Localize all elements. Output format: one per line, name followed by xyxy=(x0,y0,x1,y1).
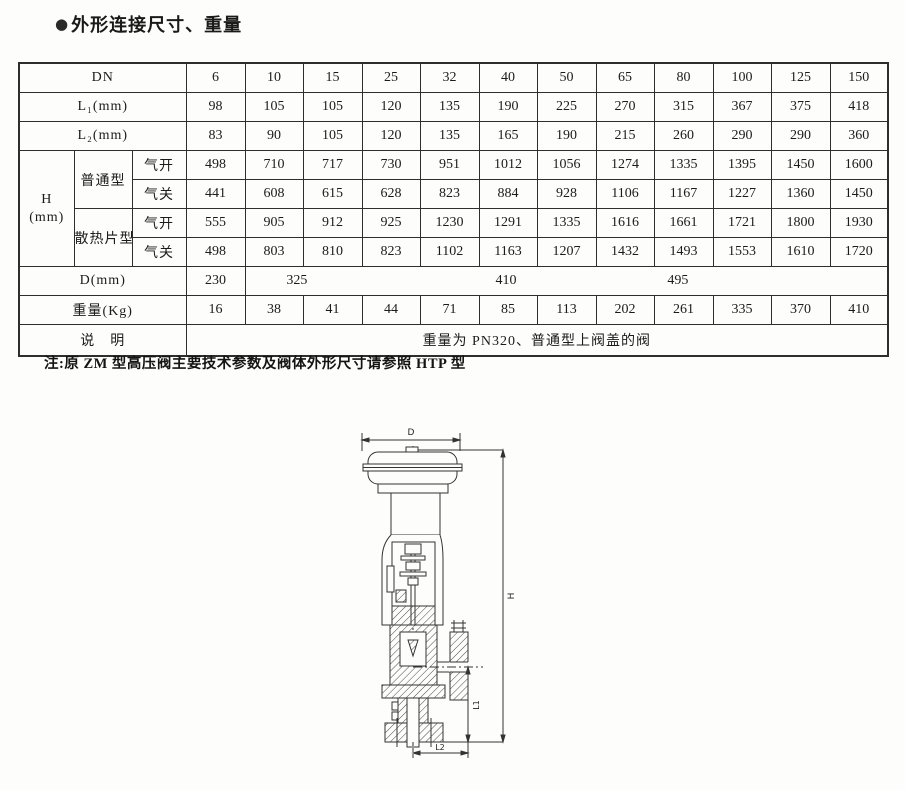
table-cell: 1102 xyxy=(420,238,479,267)
dim-label-h: H xyxy=(507,593,517,600)
table-cell: 215 xyxy=(596,122,654,151)
table-cell: 823 xyxy=(420,180,479,209)
table-cell: 50 xyxy=(537,63,596,93)
table-cell: 418 xyxy=(830,93,888,122)
table-cell: 135 xyxy=(420,93,479,122)
row-label-weight: 重量(Kg) xyxy=(19,296,186,325)
table-cell: 1610 xyxy=(771,238,830,267)
table-cell: 120 xyxy=(362,122,420,151)
group-label-finned: 散热片型 xyxy=(74,209,132,267)
table-row: H (mm) 普通型 气开 49871071773095110121056127… xyxy=(19,151,888,180)
table-cell: 1395 xyxy=(713,151,771,180)
valve-drawing: D H L1 L2 xyxy=(330,420,530,775)
table-cell: 315 xyxy=(654,93,713,122)
table-cell: 290 xyxy=(771,122,830,151)
table-cell: 202 xyxy=(596,296,654,325)
sub-label-air-open: 气开 xyxy=(132,209,186,238)
d-value: 325 xyxy=(286,273,307,289)
table-cell: 498 xyxy=(186,151,245,180)
table-cell: 367 xyxy=(713,93,771,122)
table-cell: 1056 xyxy=(537,151,596,180)
table-cell: 1720 xyxy=(830,238,888,267)
table-cell: 1012 xyxy=(479,151,537,180)
table-cell: 150 xyxy=(830,63,888,93)
table-cell: 1721 xyxy=(713,209,771,238)
dim-label-d: D xyxy=(408,428,415,438)
table-cell: 441 xyxy=(186,180,245,209)
table-cell: 1450 xyxy=(830,180,888,209)
table-cell: 83 xyxy=(186,122,245,151)
dim-label-l1: L1 xyxy=(472,700,481,710)
row-label-dn: DN xyxy=(19,63,186,93)
table-cell: 375 xyxy=(771,93,830,122)
table-cell: 41 xyxy=(303,296,362,325)
table-cell: 261 xyxy=(654,296,713,325)
table-cell: 230 xyxy=(186,267,245,296)
row-label-l2: L₂(mm) xyxy=(19,122,186,151)
document-page: ● 外形连接尺寸、重量 DN 6101525324050658010012515… xyxy=(0,0,905,790)
remark-value: 重量为 PN320、普通型上阀盖的阀 xyxy=(186,325,888,356)
table-cell: 615 xyxy=(303,180,362,209)
table-cell: 608 xyxy=(245,180,303,209)
table-cell: 925 xyxy=(362,209,420,238)
table-cell: 260 xyxy=(654,122,713,151)
table-cell: 810 xyxy=(303,238,362,267)
sub-label-air-close: 气关 xyxy=(132,180,186,209)
table-row: 气关 4416086156288238849281106116712271360… xyxy=(19,180,888,209)
table-cell: 25 xyxy=(362,63,420,93)
row-label-remark: 说 明 xyxy=(19,325,186,356)
table-cell: 823 xyxy=(362,238,420,267)
table-cell: 1616 xyxy=(596,209,654,238)
table-cell: 80 xyxy=(654,63,713,93)
bonnet-flange xyxy=(382,685,445,698)
table-cell: 730 xyxy=(362,151,420,180)
page-title: 外形连接尺寸、重量 xyxy=(71,11,242,37)
table-cell: 1553 xyxy=(713,238,771,267)
table-cell: 15 xyxy=(303,63,362,93)
table-cell: 1661 xyxy=(654,209,713,238)
table-cell: 113 xyxy=(537,296,596,325)
table-cell: 1106 xyxy=(596,180,654,209)
travel-scale xyxy=(387,566,394,592)
table-cell: 1227 xyxy=(713,180,771,209)
table-cell: 905 xyxy=(245,209,303,238)
dimensions-table: DN 61015253240506580100125150 L₁(mm) 981… xyxy=(18,62,889,357)
sub-label-air-close: 气关 xyxy=(132,238,186,267)
table-cell: 710 xyxy=(245,151,303,180)
table-cell: 555 xyxy=(186,209,245,238)
group-label-ordinary: 普通型 xyxy=(74,151,132,209)
table-cell: 951 xyxy=(420,151,479,180)
row-label-l1: L₁(mm) xyxy=(19,93,186,122)
h-label: H xyxy=(20,191,74,209)
table-cell: 1335 xyxy=(537,209,596,238)
table-cell: 125 xyxy=(771,63,830,93)
table-cell: 65 xyxy=(596,63,654,93)
table-cell: 16 xyxy=(186,296,245,325)
neck xyxy=(391,493,440,535)
table-cell: 1207 xyxy=(537,238,596,267)
table-cell: 32 xyxy=(420,63,479,93)
table-cell: 1274 xyxy=(596,151,654,180)
h-label-unit: (mm) xyxy=(20,209,74,227)
table-cell: 105 xyxy=(303,122,362,151)
table-cell: 928 xyxy=(537,180,596,209)
table-cell-merged: 325 410 495 xyxy=(245,267,888,296)
table-cell: 498 xyxy=(186,238,245,267)
table-row: 说 明 重量为 PN320、普通型上阀盖的阀 xyxy=(19,325,888,356)
table-cell: 1335 xyxy=(654,151,713,180)
actuator-adapter xyxy=(378,484,448,493)
table-cell: 270 xyxy=(596,93,654,122)
table-cell: 135 xyxy=(420,122,479,151)
table-cell: 1167 xyxy=(654,180,713,209)
table-cell: 1930 xyxy=(830,209,888,238)
table-cell: 335 xyxy=(713,296,771,325)
table-cell: 105 xyxy=(245,93,303,122)
table-cell: 1360 xyxy=(771,180,830,209)
row-label-d: D(mm) xyxy=(19,267,186,296)
table-cell: 71 xyxy=(420,296,479,325)
table-cell: 1230 xyxy=(420,209,479,238)
table-row: D(mm) 230 325 410 495 xyxy=(19,267,888,296)
table-cell: 120 xyxy=(362,93,420,122)
bottom-pipe xyxy=(407,698,419,747)
table-cell: 912 xyxy=(303,209,362,238)
table-cell: 98 xyxy=(186,93,245,122)
table-cell: 1800 xyxy=(771,209,830,238)
table-row: L₂(mm) 839010512013516519021526029029036… xyxy=(19,122,888,151)
table-cell: 884 xyxy=(479,180,537,209)
table-cell: 717 xyxy=(303,151,362,180)
table-row: L₁(mm) 981051051201351902252703153673754… xyxy=(19,93,888,122)
table-cell: 40 xyxy=(479,63,537,93)
table-cell: 360 xyxy=(830,122,888,151)
footnote: 注:原 ZM 型高压阀主要技术参数及阀体外形尺寸请参照 HTP 型 xyxy=(44,352,466,373)
sub-label-air-open: 气开 xyxy=(132,151,186,180)
row-label-h: H (mm) xyxy=(19,151,74,267)
valve-drawing-svg: D H L1 L2 xyxy=(330,420,530,775)
table-cell: 1600 xyxy=(830,151,888,180)
table-row: DN 61015253240506580100125150 xyxy=(19,63,888,93)
table-cell: 803 xyxy=(245,238,303,267)
table-cell: 1163 xyxy=(479,238,537,267)
table-row: 气关 4988038108231102116312071432149315531… xyxy=(19,238,888,267)
table-cell: 6 xyxy=(186,63,245,93)
table-cell: 1493 xyxy=(654,238,713,267)
table-cell: 165 xyxy=(479,122,537,151)
d-value: 410 xyxy=(495,273,516,289)
table-cell: 105 xyxy=(303,93,362,122)
table-row: 散热片型 气开 55590591292512301291133516161661… xyxy=(19,209,888,238)
table-cell: 190 xyxy=(479,93,537,122)
table-cell: 225 xyxy=(537,93,596,122)
table-cell: 10 xyxy=(245,63,303,93)
table-cell: 410 xyxy=(830,296,888,325)
table-cell: 1291 xyxy=(479,209,537,238)
section-title: ● 外形连接尺寸、重量 xyxy=(55,11,242,37)
table-cell: 190 xyxy=(537,122,596,151)
table-cell: 370 xyxy=(771,296,830,325)
table-cell: 100 xyxy=(713,63,771,93)
bullet-icon: ● xyxy=(55,17,68,32)
table-cell: 90 xyxy=(245,122,303,151)
table-cell: 44 xyxy=(362,296,420,325)
table-cell: 38 xyxy=(245,296,303,325)
table-cell: 1432 xyxy=(596,238,654,267)
table-cell: 628 xyxy=(362,180,420,209)
d-value: 495 xyxy=(667,273,688,289)
table-cell: 1450 xyxy=(771,151,830,180)
table-cell: 85 xyxy=(479,296,537,325)
table-cell: 290 xyxy=(713,122,771,151)
table-row: 重量(Kg) 163841447185113202261335370410 xyxy=(19,296,888,325)
dim-label-l2: L2 xyxy=(435,743,445,752)
